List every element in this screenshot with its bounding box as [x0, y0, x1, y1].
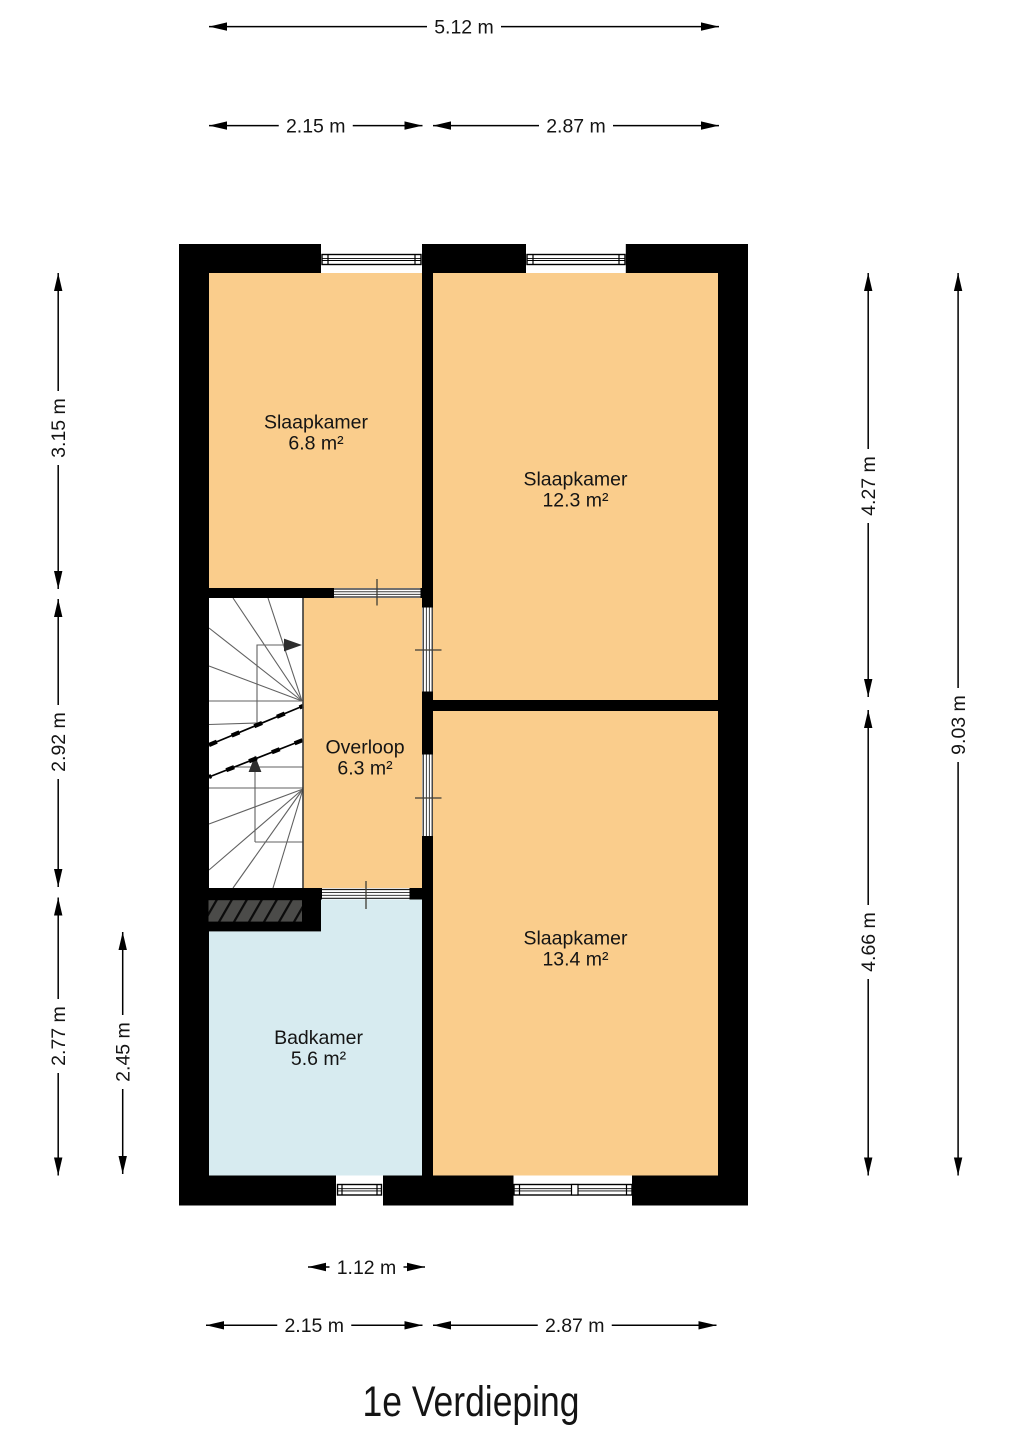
- svg-text:5.12 m: 5.12 m: [434, 16, 494, 38]
- svg-text:2.45 m: 2.45 m: [113, 1022, 135, 1082]
- svg-text:1.12 m: 1.12 m: [337, 1257, 397, 1279]
- svg-text:1e Verdieping: 1e Verdieping: [363, 1378, 580, 1426]
- svg-text:Slaapkamer: Slaapkamer: [523, 469, 628, 491]
- svg-text:4.66 m: 4.66 m: [858, 912, 880, 972]
- svg-text:2.15 m: 2.15 m: [284, 1315, 344, 1337]
- svg-text:4.27 m: 4.27 m: [858, 456, 880, 516]
- svg-text:Slaapkamer: Slaapkamer: [264, 412, 369, 434]
- svg-text:5.6 m²: 5.6 m²: [291, 1048, 347, 1070]
- svg-text:3.15 m: 3.15 m: [48, 398, 70, 458]
- svg-text:9.03 m: 9.03 m: [948, 695, 970, 755]
- svg-text:2.15 m: 2.15 m: [286, 115, 346, 137]
- svg-text:2.92 m: 2.92 m: [48, 712, 70, 772]
- svg-text:6.3 m²: 6.3 m²: [337, 758, 393, 780]
- svg-text:6.8 m²: 6.8 m²: [288, 433, 344, 455]
- svg-text:2.77 m: 2.77 m: [48, 1006, 70, 1066]
- svg-text:Overloop: Overloop: [325, 737, 404, 759]
- svg-text:Badkamer: Badkamer: [274, 1027, 363, 1049]
- svg-text:2.87 m: 2.87 m: [545, 1315, 605, 1337]
- svg-text:13.4 m²: 13.4 m²: [542, 949, 609, 971]
- svg-text:12.3 m²: 12.3 m²: [542, 490, 609, 512]
- svg-text:2.87 m: 2.87 m: [546, 115, 606, 137]
- svg-text:Slaapkamer: Slaapkamer: [523, 928, 628, 950]
